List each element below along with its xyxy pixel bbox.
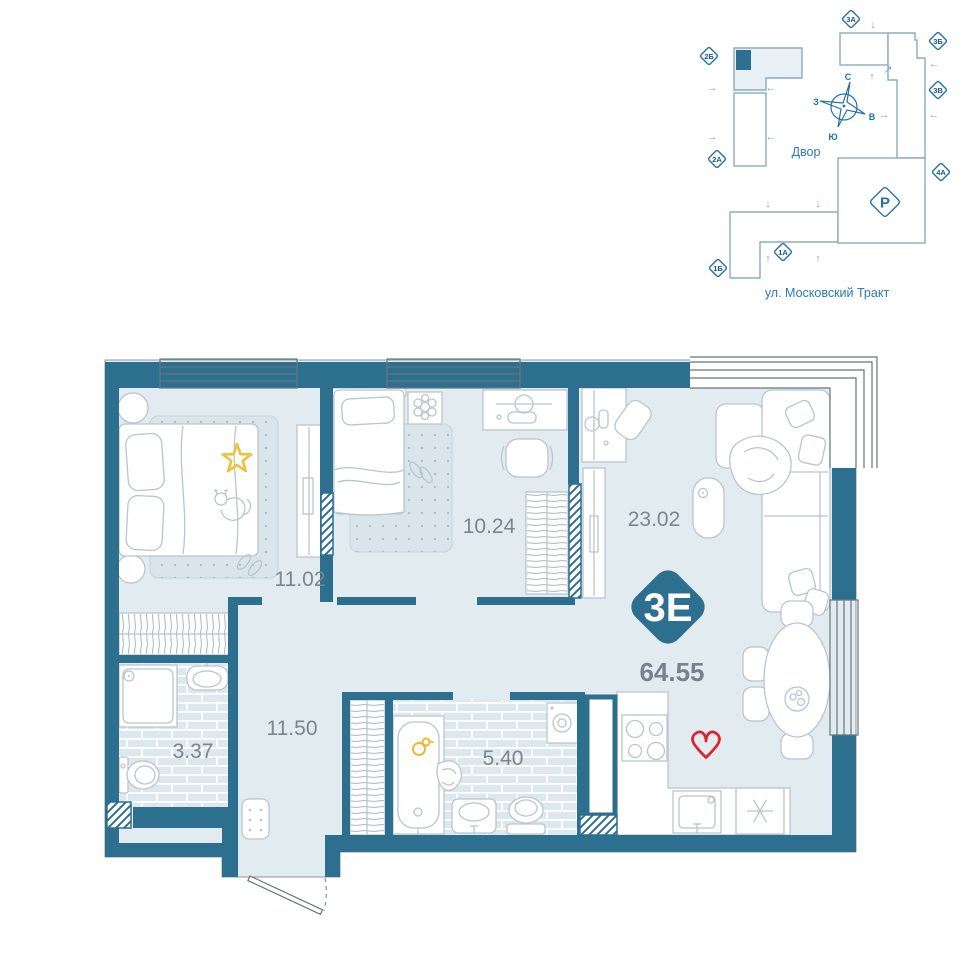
arrow-icon: ↗ xyxy=(883,64,892,76)
arrow-icon: ↓ xyxy=(765,198,771,210)
room-area-label: 23.02 xyxy=(628,508,681,531)
arrow-icon: ← xyxy=(929,109,940,121)
arrow-icon: ← xyxy=(766,131,777,143)
site-badge-1a: 1А xyxy=(774,243,792,261)
blanket xyxy=(730,436,791,494)
site-badge-3b: 3Б xyxy=(929,32,947,50)
total-area-label: 64.55 xyxy=(639,657,704,687)
arrow-icon: → xyxy=(707,82,718,94)
pillow xyxy=(797,434,826,466)
arrow-icon: ↓ xyxy=(815,198,821,210)
badge-label: 2А xyxy=(712,155,722,164)
dining-table xyxy=(764,623,830,737)
room-area-label: 11.02 xyxy=(275,568,326,591)
badge-label: 2Б xyxy=(704,52,714,61)
compass-west: З xyxy=(813,97,819,107)
badge-label: 3А xyxy=(846,15,856,24)
closet-clothes xyxy=(350,700,385,835)
room-area-label: 10.24 xyxy=(463,515,516,538)
arrow-icon: → xyxy=(879,109,890,121)
compass-south: Ю xyxy=(828,132,837,142)
site-building-3b-3v xyxy=(888,33,925,158)
arrow-icon: ↓ xyxy=(870,19,876,31)
towel xyxy=(437,761,461,791)
fridge xyxy=(736,788,784,834)
kitchen-sink xyxy=(673,791,721,833)
arrow-icon: ↑ xyxy=(765,253,771,265)
site-badge-3v: 3В xyxy=(929,81,947,99)
shower xyxy=(119,665,177,727)
wardrobe xyxy=(297,425,321,557)
doormat xyxy=(242,799,269,839)
toilet xyxy=(507,797,545,834)
site-badge-1b: 1Б xyxy=(709,259,727,277)
street-label: ул. Московский Тракт xyxy=(765,286,890,300)
site-badge-2b: 2Б xyxy=(700,47,718,65)
vent-shaft xyxy=(587,697,615,815)
plant-icon xyxy=(408,392,442,424)
badge-label: 3В xyxy=(933,86,943,95)
site-building-3a xyxy=(840,33,888,65)
desk xyxy=(483,390,567,430)
plan-canvas: Р С Ю З В → ← → ← ↓ ↓ ↑ ↑ ↓ ↑ ↗ ← ← → xyxy=(0,0,960,960)
arrow-icon: → xyxy=(707,131,718,143)
site-plan: Р С Ю З В → ← → ← ↓ ↓ ↑ ↑ ↓ ↑ ↗ ← ← → xyxy=(700,10,950,300)
badge-label: 3Б xyxy=(933,37,943,46)
unit-type-label: 3Е xyxy=(644,586,693,630)
compass-icon: С Ю З В xyxy=(813,72,876,142)
living-wardrobe xyxy=(583,468,605,598)
nightstand xyxy=(118,393,148,423)
closet-clothes xyxy=(119,613,230,655)
washing-machine xyxy=(547,703,578,743)
arrow-icon: ← xyxy=(929,58,940,70)
nightstand xyxy=(117,555,145,583)
arrow-icon: ↑ xyxy=(869,71,875,83)
single-bed xyxy=(332,388,406,515)
entrance-door xyxy=(248,876,326,914)
site-building-2a xyxy=(734,93,766,166)
current-building-marker xyxy=(736,50,751,70)
stove xyxy=(622,715,667,761)
door-swing-arc xyxy=(324,878,326,911)
door-leaf xyxy=(248,876,323,914)
courtyard-label: Двор xyxy=(792,145,821,159)
badge-label: 4А xyxy=(936,168,946,177)
arrow-icon: ← xyxy=(766,82,777,94)
floor-lamp xyxy=(693,478,724,538)
room-area-label: 3.37 xyxy=(173,740,214,763)
room-area-label: 11.50 xyxy=(267,717,318,740)
compass-east: В xyxy=(869,112,876,122)
bathroom-sink xyxy=(452,799,496,833)
badge-label: 1А xyxy=(778,248,788,257)
closet-clothes xyxy=(526,492,568,594)
floor-plan: 11.02 10.24 23.02 11.50 3.37 5.40 3Е 64.… xyxy=(105,356,878,914)
compass-north: С xyxy=(845,72,852,82)
arrow-icon: ↑ xyxy=(815,253,821,265)
site-badge-3a: 3А xyxy=(842,10,860,28)
parking-label: Р xyxy=(880,195,890,212)
floorplan-page: Р С Ю З В → ← → ← ↓ ↓ ↑ ↑ ↓ ↑ ↗ ← ← → xyxy=(0,0,960,960)
office-chair xyxy=(502,439,553,477)
badge-label: 1Б xyxy=(713,264,723,273)
site-badge-4a: 4А xyxy=(932,163,950,181)
room-area-label: 5.40 xyxy=(483,747,524,770)
site-badge-2a: 2А xyxy=(708,150,726,168)
